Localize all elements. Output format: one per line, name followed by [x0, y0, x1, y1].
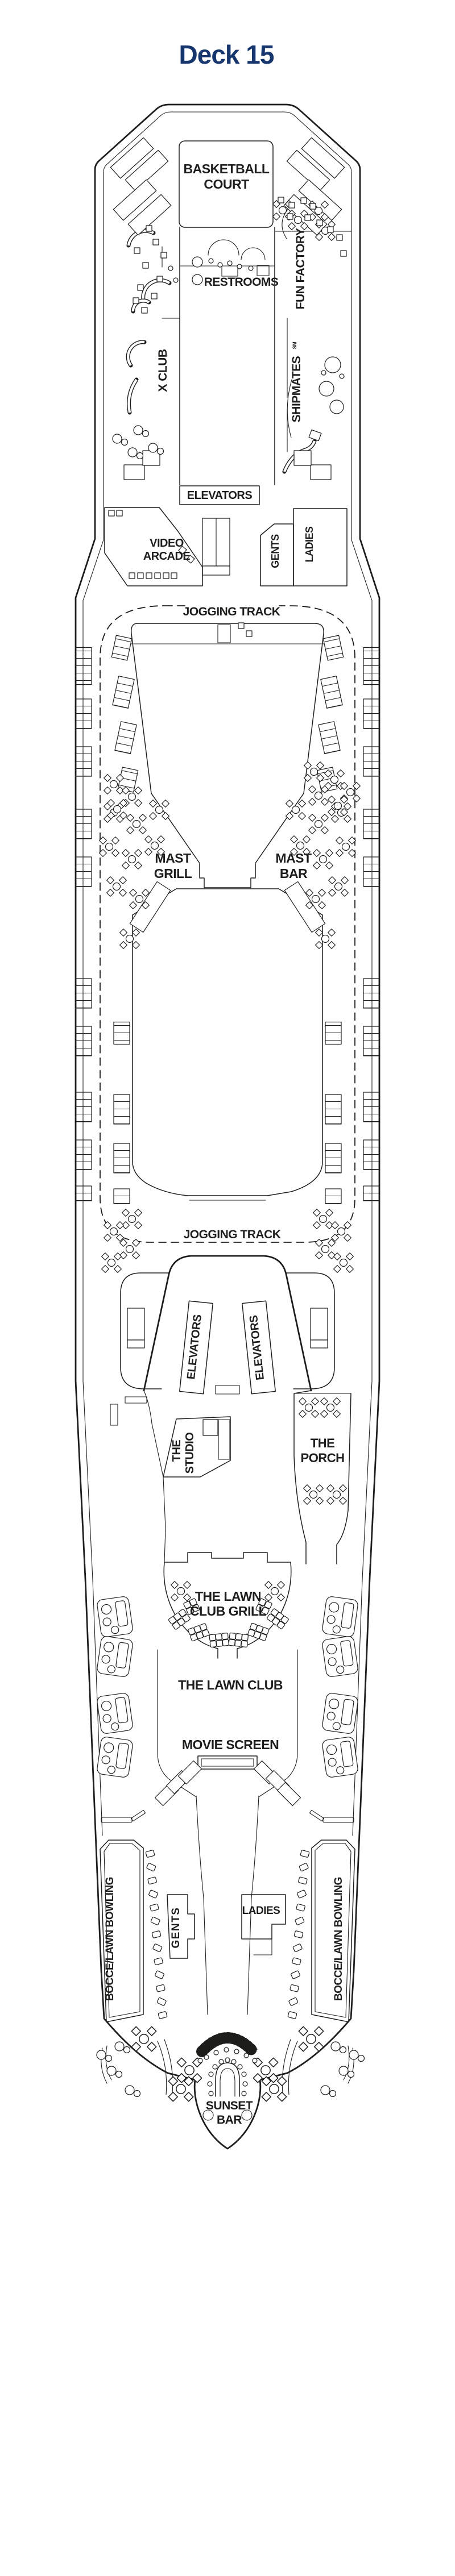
- porch-label: THE: [311, 1436, 335, 1450]
- table-flower: [127, 814, 147, 834]
- shipmates-servicemark: SM: [292, 342, 297, 349]
- deck-chair-group: [114, 1022, 130, 1044]
- table-pair: [134, 426, 149, 437]
- lounger-link: [299, 1863, 309, 1871]
- porch-label: PORCH: [301, 1451, 345, 1465]
- deck-chair-group: [325, 1143, 341, 1173]
- deck-chair-group: [115, 722, 136, 754]
- stool-square: [155, 573, 160, 579]
- stool-square: [146, 226, 152, 231]
- table-flower: [334, 1253, 354, 1273]
- stool-square: [138, 285, 143, 290]
- lounger-link: [297, 1890, 307, 1899]
- deck-chair-group: [76, 699, 92, 729]
- seat-dot: [244, 2053, 249, 2058]
- table-flower: [329, 877, 349, 897]
- dining-table-cluster: [229, 1633, 249, 1647]
- table-flower: [313, 1209, 333, 1229]
- seat-dot: [209, 259, 213, 263]
- ladies-room-outline: [293, 509, 347, 586]
- table-flower: [104, 803, 124, 823]
- cabana: [322, 1692, 359, 1734]
- sports-deck-upper: [131, 623, 324, 888]
- lounger-link: [295, 1917, 304, 1925]
- deck-chair-group: [323, 635, 343, 660]
- movie-screen-label: MOVIE SCREEN: [182, 1737, 279, 1752]
- basketball-court-label: COURT: [204, 177, 249, 192]
- stool-square: [171, 573, 177, 579]
- lounger-link: [146, 1850, 155, 1857]
- mast-bar-label: BAR: [280, 866, 308, 881]
- table-pair: [349, 2050, 365, 2062]
- table: [192, 257, 202, 267]
- stool-square: [163, 573, 169, 579]
- equipment: [218, 1420, 230, 1459]
- lounger-link: [293, 1944, 303, 1952]
- stairs: [284, 881, 325, 932]
- sunset-bar-label: BAR: [217, 2113, 242, 2126]
- lawn-club-grill-label: THE LAWN: [195, 1589, 261, 1604]
- bocce-label-left: BOCCE/LAWN BOWLING: [104, 1877, 116, 2001]
- cabana: [97, 1692, 134, 1734]
- cabana: [322, 1596, 359, 1637]
- table-flower: [304, 1485, 324, 1505]
- table-pair: [125, 2086, 140, 2097]
- deck-chair-group: [76, 857, 92, 887]
- table-flower: [102, 1253, 122, 1273]
- corridor-wall-left: [196, 1796, 208, 2015]
- studio-label: THE: [171, 1440, 183, 1462]
- x-club-label: X CLUB: [156, 349, 169, 392]
- fun-factory-label: FUN FACTORY: [294, 228, 307, 309]
- video-arcade-label: VIDEO: [150, 537, 184, 550]
- lounger-link: [291, 1971, 300, 1979]
- wall: [254, 1939, 272, 1955]
- cabana: [97, 1736, 134, 1778]
- table-pair: [97, 2050, 112, 2062]
- table-flower: [316, 1239, 336, 1259]
- deck-chair-group: [114, 1189, 130, 1204]
- lounger-link: [151, 1917, 160, 1925]
- table-flower: [107, 877, 127, 897]
- stairs: [311, 1308, 328, 1340]
- equipment: [218, 625, 230, 643]
- table-flower: [316, 929, 336, 949]
- lounger-link: [152, 1930, 161, 1938]
- stairs: [203, 1420, 218, 1435]
- seat-dot: [204, 2055, 209, 2059]
- funnel-structure: [121, 1256, 334, 1394]
- deck-chair-group: [363, 1140, 379, 1170]
- counter: [125, 1397, 147, 1403]
- bocce-label-right: BOCCE/LAWN BOWLING: [333, 1877, 345, 2001]
- deck-chair-group: [363, 699, 379, 729]
- mast-bar-label: MAST: [275, 851, 312, 865]
- gents-bottom-label: GENTS: [170, 1907, 182, 1949]
- lounger-link: [150, 1904, 159, 1911]
- hull-inner-line-left: [83, 112, 227, 1836]
- seat-dot: [234, 2049, 239, 2054]
- deck-chair-group: [325, 1189, 341, 1204]
- table-flower: [265, 1582, 285, 1601]
- bar-counter: [216, 2063, 239, 2096]
- lounger-link: [288, 2011, 297, 2019]
- table-flower: [122, 850, 142, 869]
- seat-dot: [253, 2058, 257, 2063]
- studio-label: STUDIO: [184, 1433, 196, 1474]
- stool-square: [246, 631, 252, 636]
- counter: [110, 1404, 118, 1425]
- lounger-link: [296, 1904, 305, 1911]
- table-flower: [171, 1582, 191, 1601]
- table-pair: [113, 434, 128, 446]
- cabana: [322, 1736, 359, 1778]
- table-pair: [128, 448, 143, 459]
- deck-chair-group: [76, 809, 92, 839]
- stool-square: [153, 239, 159, 245]
- dining-table-cluster: [247, 1623, 269, 1641]
- deck-plan-canvas: Deck 15: [0, 0, 455, 2576]
- lounger-link: [152, 1944, 162, 1952]
- table: [192, 274, 202, 285]
- seat-dot: [249, 266, 253, 270]
- lounger-link: [300, 1850, 309, 1857]
- stairs-landing: [127, 1340, 144, 1348]
- table-flower: [122, 1209, 142, 1229]
- deck-chair-group: [363, 979, 379, 1008]
- deck-chair-group: [76, 747, 92, 776]
- stool-square: [317, 220, 322, 226]
- seat-dot: [227, 261, 232, 265]
- seat-dot: [173, 278, 178, 282]
- deck-chair-group: [76, 1140, 92, 1170]
- deck-chair-group: [111, 635, 131, 660]
- stool-square: [138, 573, 143, 579]
- stool-square: [161, 252, 167, 258]
- cabana: [322, 1636, 359, 1677]
- seat-dot: [237, 264, 242, 269]
- stool-square: [142, 307, 147, 313]
- lawn-club-grill-label: CLUB GRILL: [190, 1604, 267, 1618]
- movie-screen-structure: [198, 1756, 257, 1769]
- lounger-link: [158, 2011, 167, 2019]
- table-flower: [104, 1222, 124, 1242]
- sunset-bar-label: SUNSET: [206, 2099, 253, 2112]
- stool-square: [133, 298, 139, 303]
- seating-arc: [241, 248, 265, 260]
- deck-chair-group: [325, 1022, 341, 1044]
- stool-square: [238, 623, 244, 629]
- stool-square: [146, 573, 152, 579]
- seat-dot: [168, 266, 173, 270]
- jogging-track-label-bottom: JOGGING TRACK: [184, 1228, 281, 1241]
- deck-chair-group: [114, 1095, 130, 1124]
- stool-square: [109, 510, 114, 516]
- stool-square: [301, 198, 307, 203]
- page-title: Deck 15: [179, 40, 274, 69]
- stool-square: [328, 227, 333, 232]
- stairs: [143, 451, 160, 465]
- table-flower: [299, 1398, 319, 1418]
- elevators-right-label: ELEVATORS: [247, 1314, 267, 1380]
- deck-chair-group: [363, 1092, 379, 1122]
- seating-arc: [208, 240, 239, 255]
- dining-table-cluster: [188, 1623, 209, 1641]
- cabana: [97, 1596, 134, 1637]
- stairs: [124, 465, 144, 480]
- deck-chair-group: [363, 1186, 379, 1201]
- equipment: [216, 1385, 239, 1394]
- stairs: [311, 465, 331, 480]
- stairs: [127, 1308, 144, 1340]
- lounger-link: [292, 1958, 301, 1965]
- table-flower: [336, 837, 356, 857]
- stairs: [130, 881, 170, 932]
- lounger-link: [155, 1971, 164, 1979]
- deck-chair-group: [325, 1095, 341, 1124]
- gents-top-label: GENTS: [270, 534, 281, 568]
- elevators-left-label: ELEVATORS: [185, 1314, 204, 1380]
- furniture-layer: [76, 138, 379, 2101]
- table-flower: [321, 1398, 341, 1418]
- deck-chair-group: [76, 1186, 92, 1201]
- lounger-link: [148, 1890, 158, 1899]
- video-arcade-label: ARCADE: [143, 550, 191, 563]
- stool-square: [310, 203, 316, 209]
- stool-square: [278, 197, 284, 203]
- mast-grill-label: GRILL: [154, 866, 192, 881]
- dining-table-cluster: [209, 1633, 229, 1647]
- deck-chair-group: [76, 979, 92, 1008]
- deck-chair-group: [321, 676, 342, 709]
- table-pair: [321, 2086, 336, 2097]
- table-flower: [131, 2026, 156, 2051]
- dining-table-cluster: [267, 1608, 289, 1629]
- deck-chair-group: [76, 1026, 92, 1056]
- wall: [144, 1391, 166, 1562]
- mast-grill-label: MAST: [155, 851, 191, 865]
- table-flower: [150, 800, 169, 820]
- stool-square: [134, 248, 140, 253]
- lounger-link: [148, 1877, 157, 1884]
- seat-dot: [198, 2058, 202, 2063]
- ladies-bottom-outline: [242, 1895, 286, 1939]
- table-flower: [120, 929, 140, 949]
- seat-dot: [224, 2048, 229, 2052]
- deck-chair-group: [363, 809, 379, 839]
- bow-stairs: [202, 518, 230, 575]
- lounger-link: [154, 1958, 163, 1965]
- deck-plan-page: Deck 15: [0, 0, 455, 2576]
- deck-chair-group: [363, 747, 379, 776]
- seat-dot: [340, 374, 344, 378]
- stool-square: [129, 573, 135, 579]
- seat-dot: [321, 371, 326, 375]
- porch-wall-right: [337, 1393, 351, 1564]
- deck-chair-group: [363, 648, 379, 685]
- deck-chair-group: [113, 676, 134, 709]
- table-flower: [299, 2026, 323, 2051]
- table-flower: [313, 850, 333, 869]
- seat-dot: [218, 263, 222, 267]
- deck-chair-group: [76, 1092, 92, 1122]
- seat-dot: [214, 2050, 218, 2055]
- stool-square: [287, 214, 293, 219]
- windbreak-left: [101, 1810, 146, 1822]
- stool-square: [143, 263, 148, 268]
- restrooms-stall: [222, 266, 238, 276]
- table-pair: [331, 2042, 346, 2053]
- lawn-club-label: THE LAWN CLUB: [178, 1678, 283, 1692]
- elevators-top-label: ELEVATORS: [187, 489, 253, 502]
- table-flower: [107, 800, 127, 819]
- table-flower: [332, 1222, 351, 1242]
- deck-chair-group: [318, 722, 340, 754]
- table-flower: [120, 1239, 140, 1259]
- table-flower: [309, 786, 329, 806]
- bar-stools: [208, 2058, 247, 2096]
- ladies-top-label: LADIES: [304, 526, 315, 563]
- shipmates-label: SHIPMATES: [290, 356, 303, 422]
- lounger-link: [157, 1997, 167, 2006]
- stairs: [294, 451, 311, 465]
- lounger-link: [290, 1984, 299, 1992]
- lounger-link: [156, 1984, 165, 1992]
- deck-chair-group: [114, 1143, 130, 1173]
- table-pair: [339, 2066, 354, 2078]
- stool-square: [337, 235, 342, 240]
- table-flower: [327, 1485, 347, 1505]
- cabana: [97, 1636, 134, 1677]
- windbreak-right: [309, 1810, 354, 1822]
- restrooms-stall: [257, 265, 269, 276]
- lounger-link: [298, 1877, 307, 1884]
- deck-chair-group: [363, 857, 379, 887]
- table-flower: [309, 814, 329, 834]
- stool-square: [305, 215, 311, 220]
- restrooms-label: RESTROOMS: [204, 276, 279, 289]
- stool-square: [157, 276, 163, 282]
- jogging-track-label-top: JOGGING TRACK: [183, 605, 280, 618]
- table-flower: [286, 800, 306, 820]
- deck-chair-group: [363, 1026, 379, 1056]
- stairs-landing: [311, 1340, 328, 1348]
- stool-square: [151, 293, 157, 299]
- lounger-link: [294, 1930, 303, 1938]
- ladies-bottom-label: LADIES: [242, 1905, 280, 1917]
- basketball-court-label: BASKETBALL: [184, 161, 270, 176]
- stool-square: [289, 202, 295, 208]
- stool-square: [117, 510, 122, 516]
- sports-deck-lower: [133, 889, 322, 1200]
- lounger-link: [288, 1997, 298, 2006]
- lounger-link: [146, 1863, 156, 1871]
- table-flower: [100, 837, 119, 857]
- deck-chair-group: [76, 648, 92, 685]
- stool-square: [341, 251, 346, 256]
